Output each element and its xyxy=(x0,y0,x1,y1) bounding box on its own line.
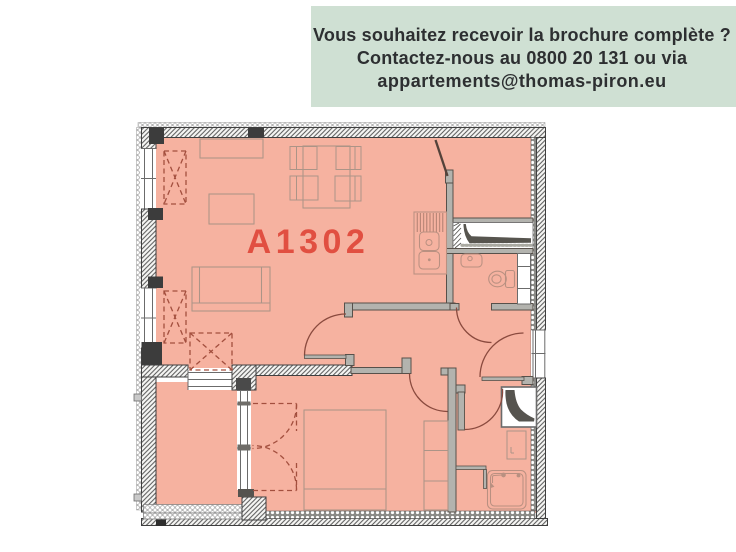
svg-text:Vous souhaitez recevoir la bro: Vous souhaitez recevoir la brochure comp… xyxy=(313,25,731,45)
svg-text:Contactez-nous au 0800 20 131: Contactez-nous au 0800 20 131 ou via xyxy=(357,48,688,68)
svg-text:appartements@thomas-piron.eu: appartements@thomas-piron.eu xyxy=(377,71,666,91)
svg-text:A1302: A1302 xyxy=(247,223,370,261)
